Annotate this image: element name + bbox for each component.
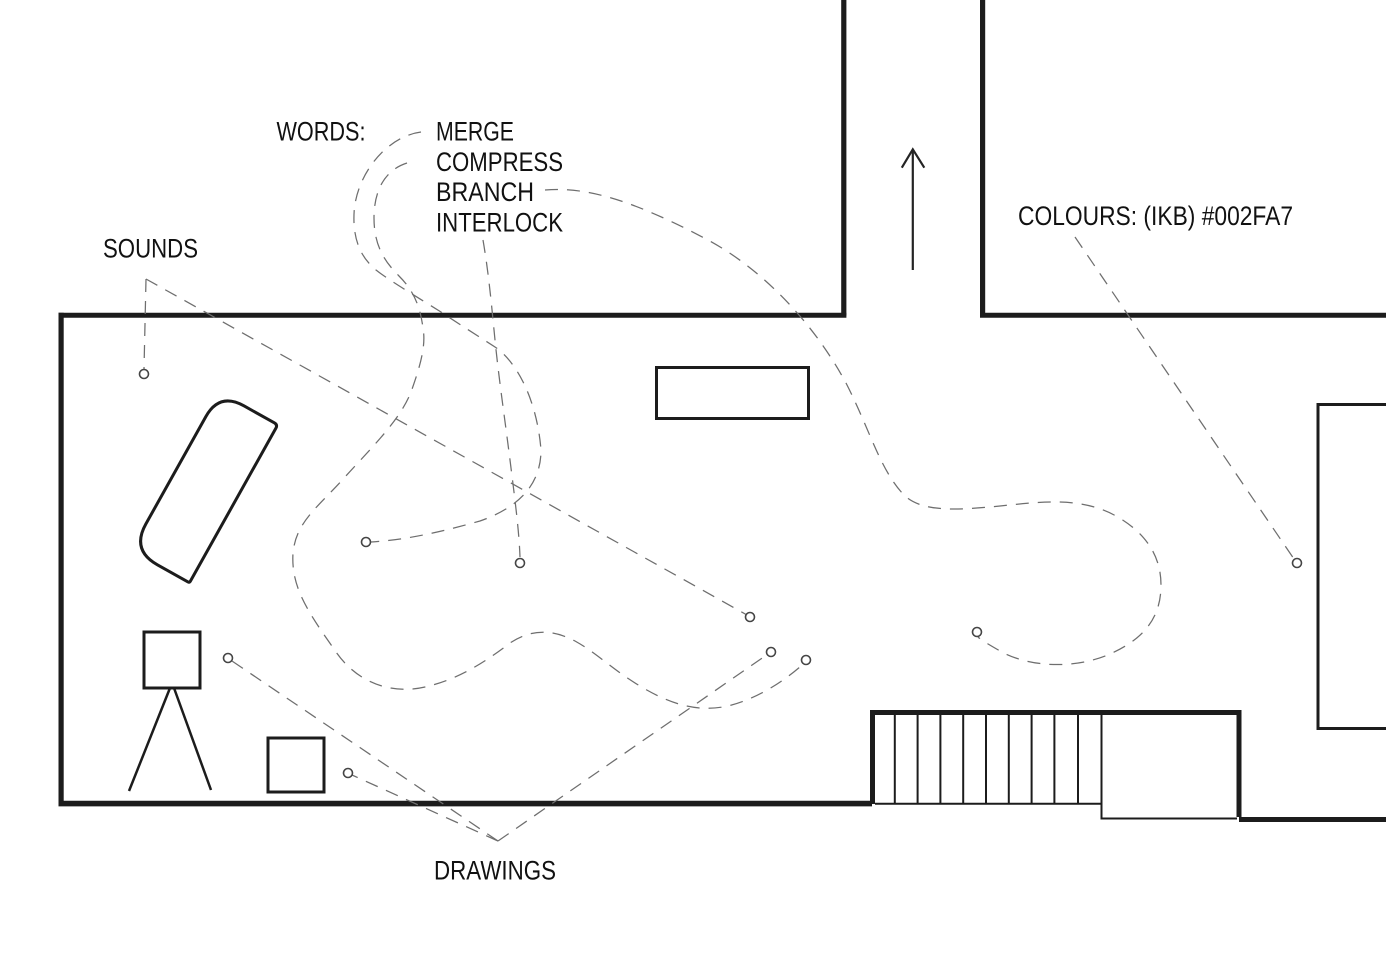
svg-text:COLOURS: (IKB) #002FA7: COLOURS: (IKB) #002FA7 [1018, 201, 1293, 231]
svg-text:BRANCH: BRANCH [436, 177, 534, 207]
svg-text:SOUNDS: SOUNDS [103, 233, 198, 263]
svg-text:WORDS:: WORDS: [277, 117, 366, 147]
svg-text:COMPRESS: COMPRESS [436, 147, 563, 177]
svg-text:INTERLOCK: INTERLOCK [436, 207, 563, 237]
svg-text:MERGE: MERGE [436, 117, 514, 147]
svg-text:DRAWINGS: DRAWINGS [434, 856, 556, 886]
